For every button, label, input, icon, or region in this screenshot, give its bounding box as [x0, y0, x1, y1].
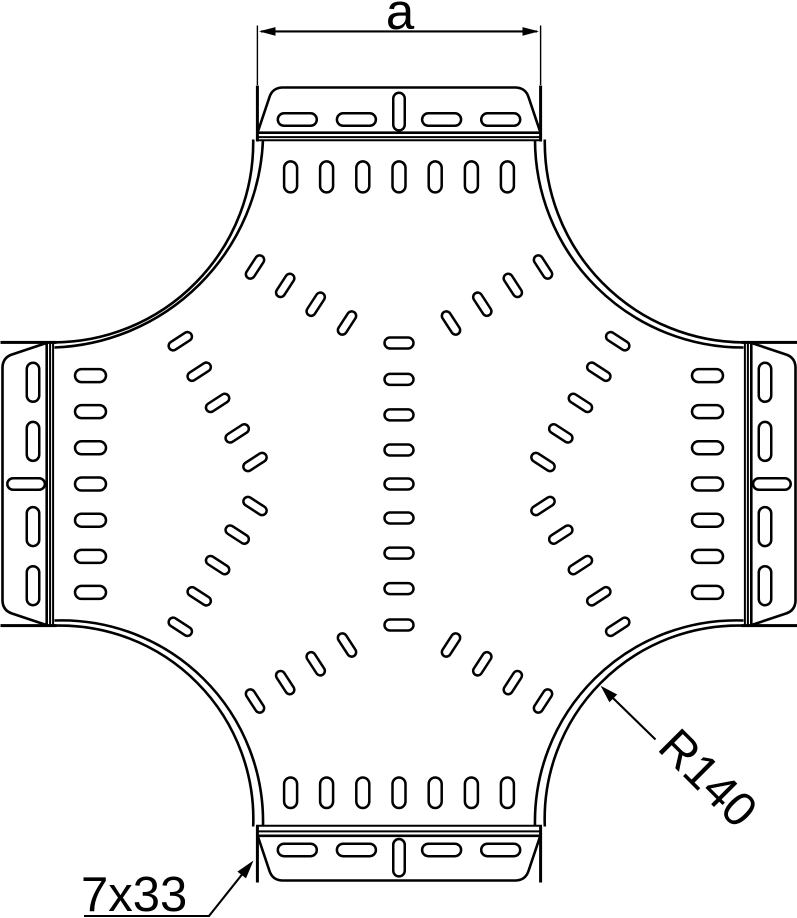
svg-text:R140: R140 [648, 719, 767, 838]
svg-text:7x33: 7x33 [81, 868, 187, 918]
svg-text:a: a [386, 0, 415, 40]
